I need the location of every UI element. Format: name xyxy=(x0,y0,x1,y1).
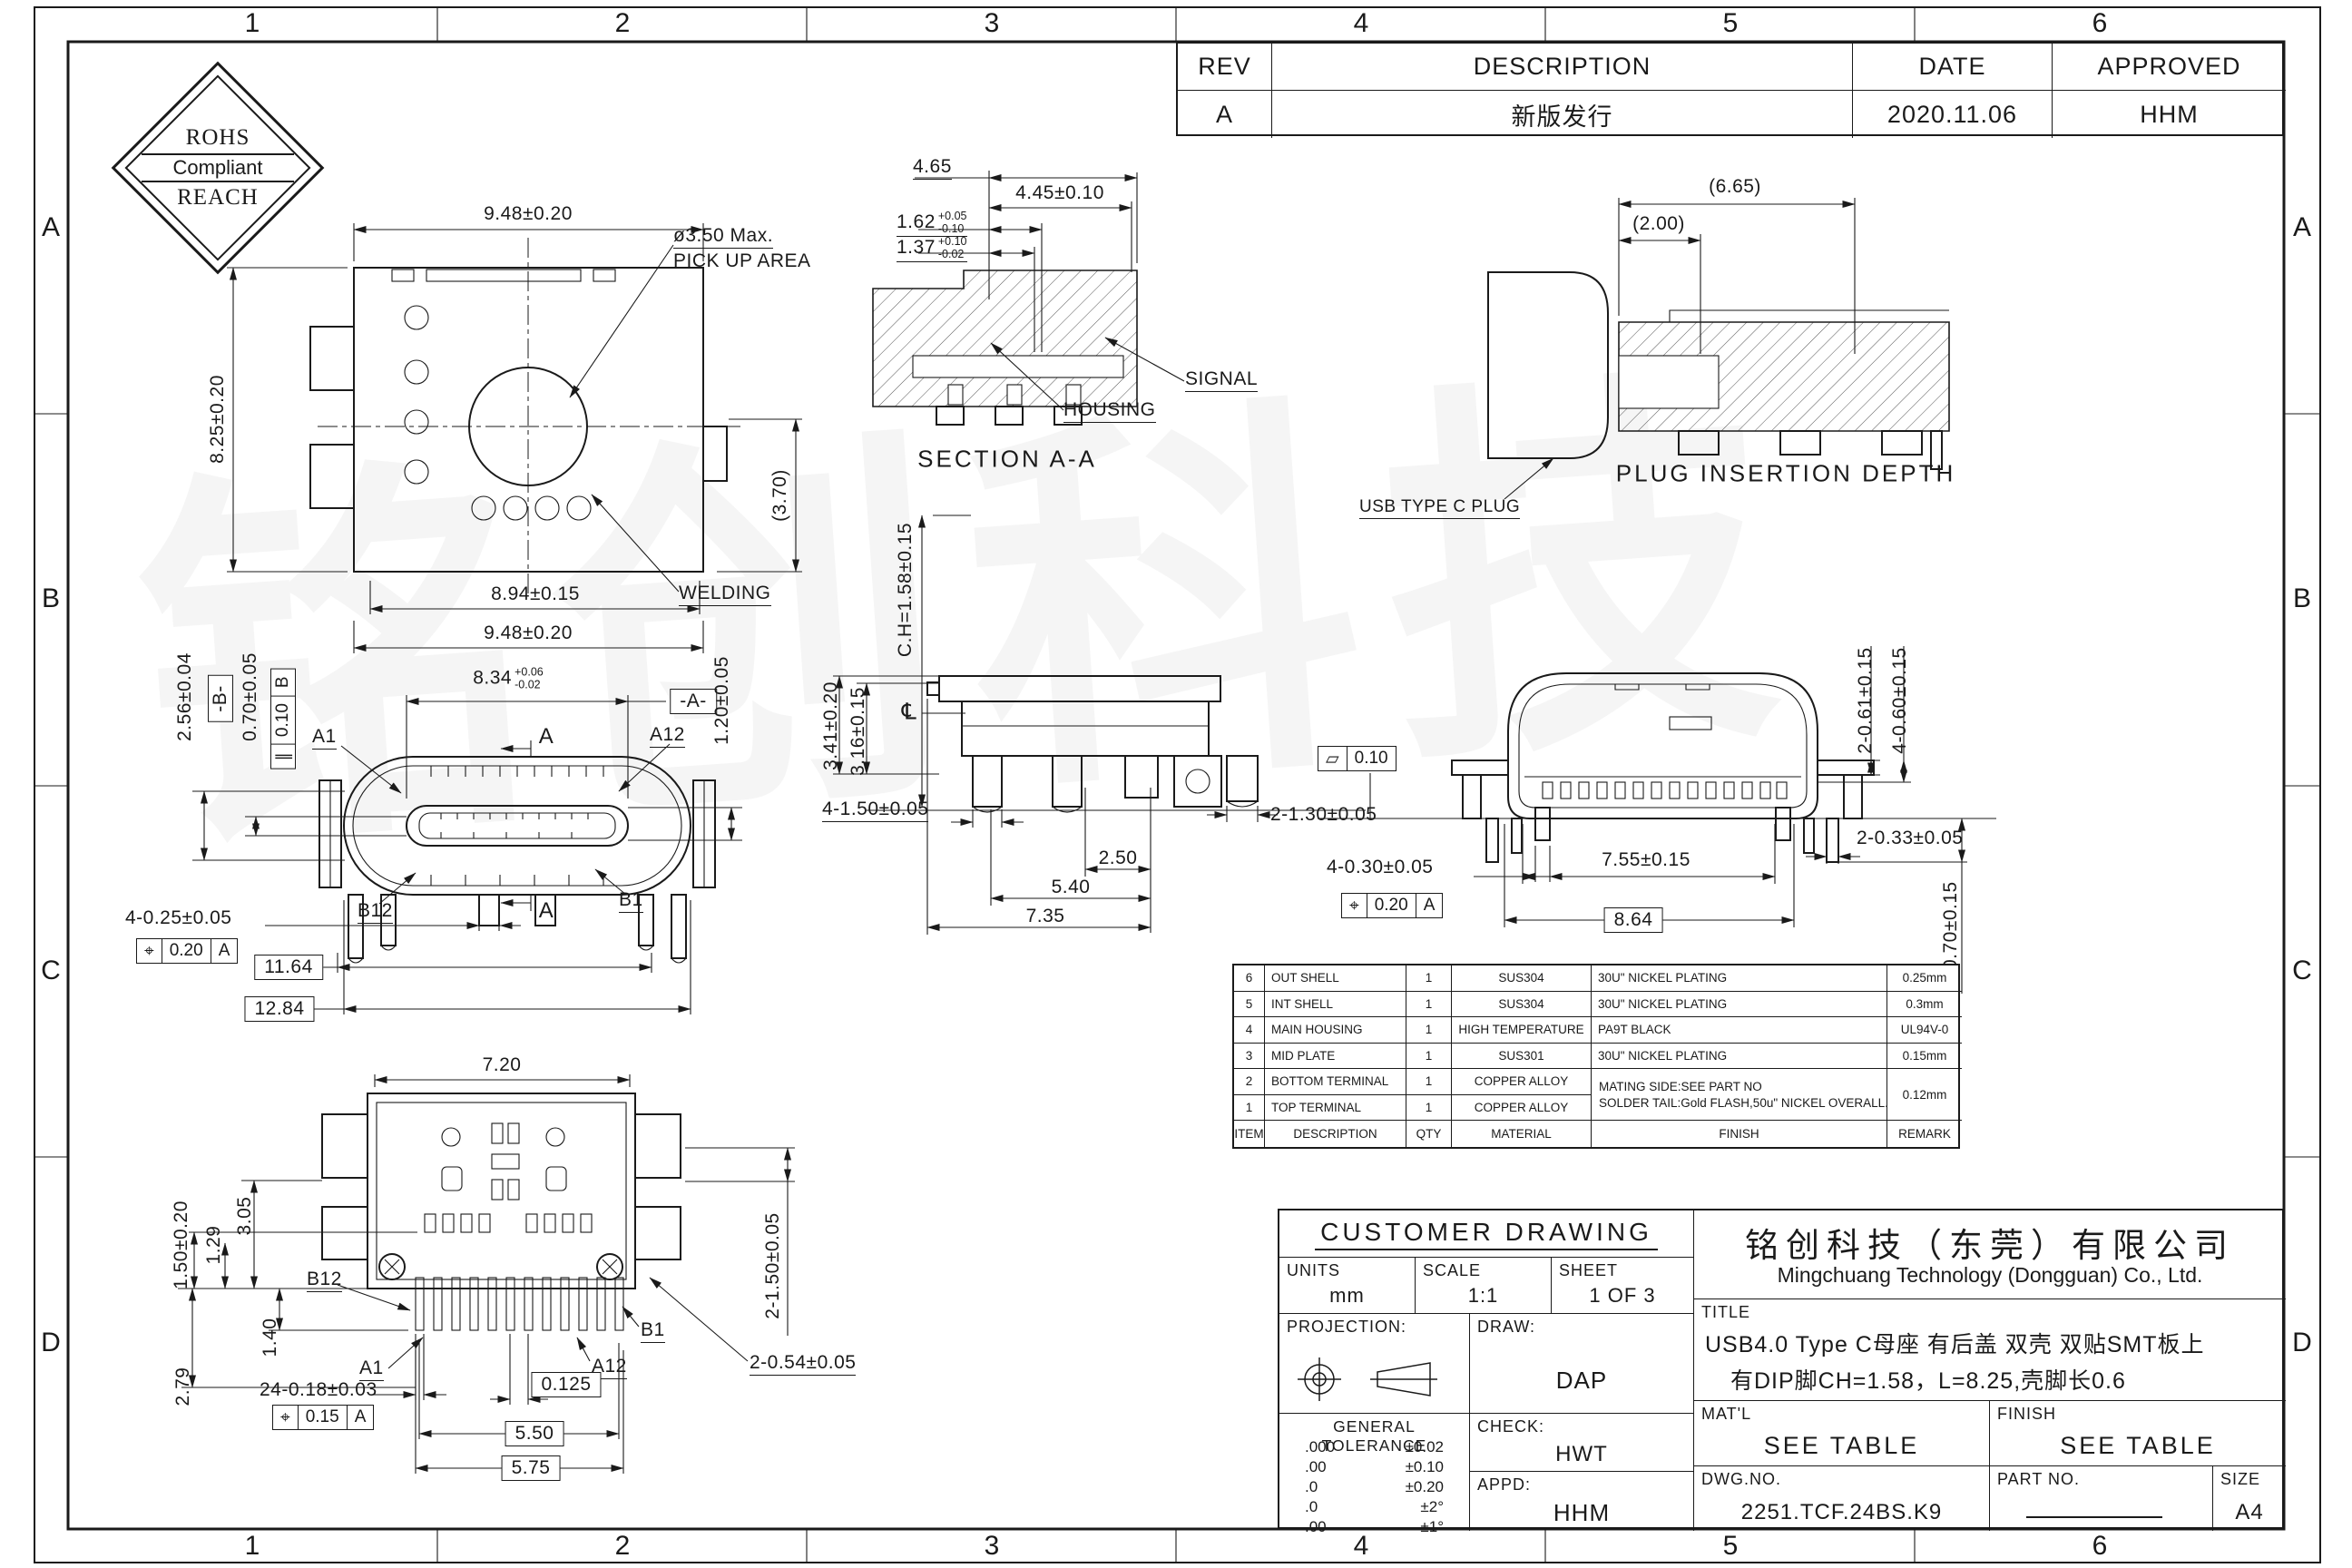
dim-side-341: 3.41±0.20 xyxy=(820,681,842,770)
bom-cell: 0.25mm xyxy=(1887,965,1962,992)
signal-label: SIGNAL xyxy=(1185,368,1258,392)
dim-side-250: 2.50 xyxy=(1099,848,1138,869)
bom-cell: 4 xyxy=(1234,1017,1265,1044)
units-cell: UNITSmm xyxy=(1279,1258,1416,1314)
tolerance-cell: GENERAL TOLERANCE .000±0.02 .00±0.10 .0±… xyxy=(1279,1414,1470,1531)
badge-reach: REACH xyxy=(177,185,259,211)
dim-bottom-550: 5.50 xyxy=(505,1421,564,1446)
dim-bottom-pins: 24-0.18±0.03 xyxy=(260,1379,377,1401)
dim-side-ch: C.H=1.58±0.15 xyxy=(895,523,916,657)
dim-side-legs: 4-1.50±0.05 xyxy=(822,799,928,822)
usb-plug-label: USB TYPE C PLUG xyxy=(1359,497,1520,519)
dim-end-033: 2-0.33±0.05 xyxy=(1857,828,1963,849)
bom-cell: 1 xyxy=(1406,992,1452,1018)
zone-col-5-bottom: 5 xyxy=(1723,1531,1739,1562)
revision-table: REV DESCRIPTION DATE APPROVED A 新版发行 202… xyxy=(1176,42,2284,136)
dim-front-070: 0.70±0.05 xyxy=(240,652,261,741)
dim-front-120: 1.20±0.05 xyxy=(711,656,733,745)
datum-b-box: -B- xyxy=(208,675,233,722)
bom-cell: BOTTOM TERMINAL xyxy=(1265,1069,1406,1095)
zone-row-d-right: D xyxy=(2292,1328,2312,1358)
rev-row-description: 新版发行 xyxy=(1272,91,1853,138)
bom-cell: MAIN HOUSING xyxy=(1265,1017,1406,1044)
dim-end-864: 8.64 xyxy=(1604,907,1663,933)
bom-cell: 1 xyxy=(1234,1095,1265,1122)
pickup-area-label-1: ø3.50 Max. xyxy=(673,225,773,249)
size-cell: SIZE A4 xyxy=(2213,1466,2286,1531)
datum-a-box: -A- xyxy=(670,689,717,714)
dim-bottom-575: 5.75 xyxy=(502,1455,561,1481)
scale-cell: SCALE1:1 xyxy=(1416,1258,1552,1314)
zone-col-3-top: 3 xyxy=(985,8,1000,39)
dim-section-137: 1.37+0.10-0.02 xyxy=(897,236,967,262)
dim-plug-665: (6.65) xyxy=(1709,176,1761,198)
dim-bottom-305: 3.05 xyxy=(234,1197,256,1236)
dim-side-316: 3.16±0.15 xyxy=(848,687,869,776)
dim-top-bottom2: 9.48±0.20 xyxy=(484,622,573,644)
section-title: SECTION A-A xyxy=(917,446,1097,474)
fcf-flatness: ▱0.10 xyxy=(1318,746,1396,771)
title-block: CUSTOMER DRAWING UNITSmm SCALE1:1 SHEET1… xyxy=(1278,1209,2284,1529)
welding-label: WELDING xyxy=(679,583,771,606)
rev-row-rev: A xyxy=(1178,91,1272,138)
dim-side-130: 2-1.30±0.05 xyxy=(1270,804,1377,826)
pickup-area-label-2: PICK UP AREA xyxy=(673,250,811,272)
dim-top-depth: (3.70) xyxy=(769,469,791,522)
company-cell: 铭创科技（东莞）有限公司 Mingchuang Technology (Dong… xyxy=(1694,1210,2286,1299)
bom-header: ITEM xyxy=(1234,1121,1265,1147)
bom-cell: TOP TERMINAL xyxy=(1265,1095,1406,1122)
zone-row-c-left: C xyxy=(41,955,61,986)
bom-header: REMARK xyxy=(1887,1121,1962,1147)
dim-bottom-140: 1.40 xyxy=(260,1318,281,1357)
dim-section-162: 1.62+0.05-0.10 xyxy=(897,211,967,237)
dim-front-1164: 11.64 xyxy=(254,955,323,980)
dim-top-bottom1: 8.94±0.15 xyxy=(491,583,580,605)
dim-end-061: 2-0.61±0.15 xyxy=(1855,647,1877,753)
customer-drawing-cell: CUSTOMER DRAWING xyxy=(1279,1210,1694,1258)
dwg-no-cell: DWG.NO. 2251.TCF.24BS.K9 xyxy=(1694,1466,1990,1531)
centerline-symbol: ℄ xyxy=(902,699,917,725)
bom-cell: 30U" NICKEL PLATING xyxy=(1592,992,1887,1018)
zone-col-1-bottom: 1 xyxy=(245,1531,260,1562)
zone-row-b-right: B xyxy=(2293,583,2311,614)
bottom-view-linework xyxy=(178,1074,795,1474)
zone-row-a-right: A xyxy=(2293,212,2311,243)
zone-row-d-left: D xyxy=(41,1328,61,1358)
dim-front-feet: 4-0.25±0.05 xyxy=(125,907,231,929)
rev-row-date: 2020.11.06 xyxy=(1853,91,2053,138)
sheet-cell: SHEET1 OF 3 xyxy=(1552,1258,1694,1314)
matl-cell: MAT'L SEE TABLE xyxy=(1694,1401,1990,1466)
dim-top-width: 9.48±0.20 xyxy=(484,203,573,225)
bom-cell: 30U" NICKEL PLATING xyxy=(1592,1044,1887,1070)
projection-cell: PROJECTION: xyxy=(1279,1314,1470,1414)
dim-section-445: 4.45±0.10 xyxy=(1015,182,1104,204)
zone-row-b-left: B xyxy=(42,583,60,614)
section-view-linework xyxy=(873,171,1184,425)
dim-side-735: 7.35 xyxy=(1026,906,1065,927)
title-cell: TITLE USB4.0 Type C母座 有后盖 双壳 双贴SMT板上 有DI… xyxy=(1694,1299,2286,1401)
bom-cell: 1 xyxy=(1406,1095,1452,1122)
dim-bottom-2150: 2-1.50±0.05 xyxy=(762,1212,784,1318)
housing-label: HOUSING xyxy=(1063,399,1156,423)
bom-cell: 30U" NICKEL PLATING xyxy=(1592,965,1887,992)
fcf-position-end: ⌖0.20A xyxy=(1341,893,1443,918)
bom-cell: PA9T BLACK xyxy=(1592,1017,1887,1044)
projection-symbol xyxy=(1294,1356,1448,1403)
zone-row-c-right: C xyxy=(2292,955,2312,986)
dim-end-060: 4-0.60±0.15 xyxy=(1889,647,1911,753)
rev-header-description: DESCRIPTION xyxy=(1272,44,1853,91)
dim-bottom-129: 1.29 xyxy=(203,1226,225,1265)
bom-cell: UL94V-0 xyxy=(1887,1017,1962,1044)
bom-header: MATERIAL xyxy=(1452,1121,1592,1147)
bom-cell: 2 xyxy=(1234,1069,1265,1095)
bom-remark-merged: 0.12mm xyxy=(1887,1069,1962,1121)
bom-cell: 1 xyxy=(1406,965,1452,992)
bom-cell: 0.3mm xyxy=(1887,992,1962,1018)
bom-cell: SUS304 xyxy=(1452,992,1592,1018)
zone-col-4-top: 4 xyxy=(1354,8,1369,39)
pin-b1-label: B1 xyxy=(619,889,643,913)
pin-a12-label: A12 xyxy=(650,724,685,748)
zone-col-1-top: 1 xyxy=(245,8,260,39)
draw-cell: DRAW: DAP xyxy=(1470,1314,1694,1414)
dim-top-height: 8.25±0.20 xyxy=(207,375,229,464)
plug-view-title: PLUG INSERTION DEPTH xyxy=(1616,460,1955,488)
dim-bottom-0125: 0.125 xyxy=(531,1372,601,1397)
zone-col-5-top: 5 xyxy=(1723,8,1739,39)
pin-a1-label: A1 xyxy=(312,726,337,750)
bom-cell: SUS301 xyxy=(1452,1044,1592,1070)
bom-cell: MID PLATE xyxy=(1265,1044,1406,1070)
rev-header-approved: APPROVED xyxy=(2053,44,2286,91)
zone-col-6-bottom: 6 xyxy=(2092,1531,2108,1562)
bom-header: QTY xyxy=(1406,1121,1452,1147)
bom-header: FINISH xyxy=(1592,1121,1887,1147)
pin-b1-bottom-label: B1 xyxy=(641,1319,665,1343)
bom-cell: 0.15mm xyxy=(1887,1044,1962,1070)
bom-cell: 1 xyxy=(1406,1044,1452,1070)
rev-header-date: DATE xyxy=(1853,44,2053,91)
dim-front-width: 8.34+0.06-0.02 xyxy=(473,667,544,691)
dim-side-540: 5.40 xyxy=(1052,877,1091,898)
bom-cell: INT SHELL xyxy=(1265,992,1406,1018)
pin-b12-bottom-label: B12 xyxy=(307,1269,342,1292)
appd-cell: APPD: HHM xyxy=(1470,1472,1694,1531)
zone-col-6-top: 6 xyxy=(2092,8,2108,39)
rohs-badge: ROHS Compliant REACH xyxy=(112,62,324,274)
dim-bottom-279: 2.79 xyxy=(172,1367,194,1406)
bom-cell: COPPER ALLOY xyxy=(1452,1095,1592,1122)
bom-finish-merged: MATING SIDE:SEE PART NOSOLDER TAIL:Gold … xyxy=(1592,1069,1887,1121)
section-mark-bottom: A xyxy=(539,898,554,924)
bom-cell: 1 xyxy=(1406,1069,1452,1095)
dim-plug-200: (2.00) xyxy=(1632,213,1685,235)
dim-end-030: 4-0.30±0.05 xyxy=(1327,857,1433,878)
bom-cell: 3 xyxy=(1234,1044,1265,1070)
bom-cell: SUS304 xyxy=(1452,965,1592,992)
rev-header-rev: REV xyxy=(1178,44,1272,91)
zone-col-2-bottom: 2 xyxy=(615,1531,631,1562)
bom-cell: HIGH TEMPERATURE xyxy=(1452,1017,1592,1044)
bom-cell: 5 xyxy=(1234,992,1265,1018)
rev-row-approved: HHM xyxy=(2053,91,2286,138)
dim-end-755: 7.55±0.15 xyxy=(1602,849,1690,871)
badge-compliant: Compliant xyxy=(142,153,294,182)
drawing-sheet: 铭创科技 .p{fill:none;stroke:#1a1a1a;stroke-… xyxy=(0,0,2352,1568)
dim-section-465: 4.65 xyxy=(913,156,952,180)
bom-header: DESCRIPTION xyxy=(1265,1121,1406,1147)
part-no-blank xyxy=(2026,1516,2162,1518)
part-no-cell: PART NO. xyxy=(1990,1466,2213,1531)
dim-front-1284: 12.84 xyxy=(244,996,314,1022)
bom-cell: 6 xyxy=(1234,965,1265,992)
bom-cell: COPPER ALLOY xyxy=(1452,1069,1592,1095)
dim-bottom-720: 7.20 xyxy=(483,1054,522,1076)
section-mark-top: A xyxy=(539,724,554,750)
dim-bottom-054: 2-0.54±0.05 xyxy=(750,1352,856,1376)
dim-front-256: 2.56±0.04 xyxy=(174,652,196,741)
fcf-position-bottom: ⌖0.15A xyxy=(272,1405,374,1430)
bom-cell: 1 xyxy=(1406,1017,1452,1044)
zone-col-3-bottom: 3 xyxy=(985,1531,1000,1562)
dim-bottom-150: 1.50±0.20 xyxy=(171,1200,192,1289)
bom-cell: OUT SHELL xyxy=(1265,965,1406,992)
bom-table: 6 OUT SHELL 1 SUS304 30U" NICKEL PLATING… xyxy=(1232,964,1960,1149)
badge-rohs: ROHS xyxy=(186,125,250,151)
zone-col-2-top: 2 xyxy=(615,8,631,39)
finish-cell: FINISH SEE TABLE xyxy=(1990,1401,2286,1466)
check-cell: CHECK: HWT xyxy=(1470,1414,1694,1472)
zone-row-a-left: A xyxy=(42,212,60,243)
fcf-parallelism: ∥0.10B xyxy=(270,668,296,769)
fcf-position-front: ⌖0.20A xyxy=(136,938,238,964)
pin-b12-label: B12 xyxy=(358,900,393,924)
plug-view-linework xyxy=(1488,198,1949,499)
pin-a1-bottom-label: A1 xyxy=(359,1357,384,1381)
